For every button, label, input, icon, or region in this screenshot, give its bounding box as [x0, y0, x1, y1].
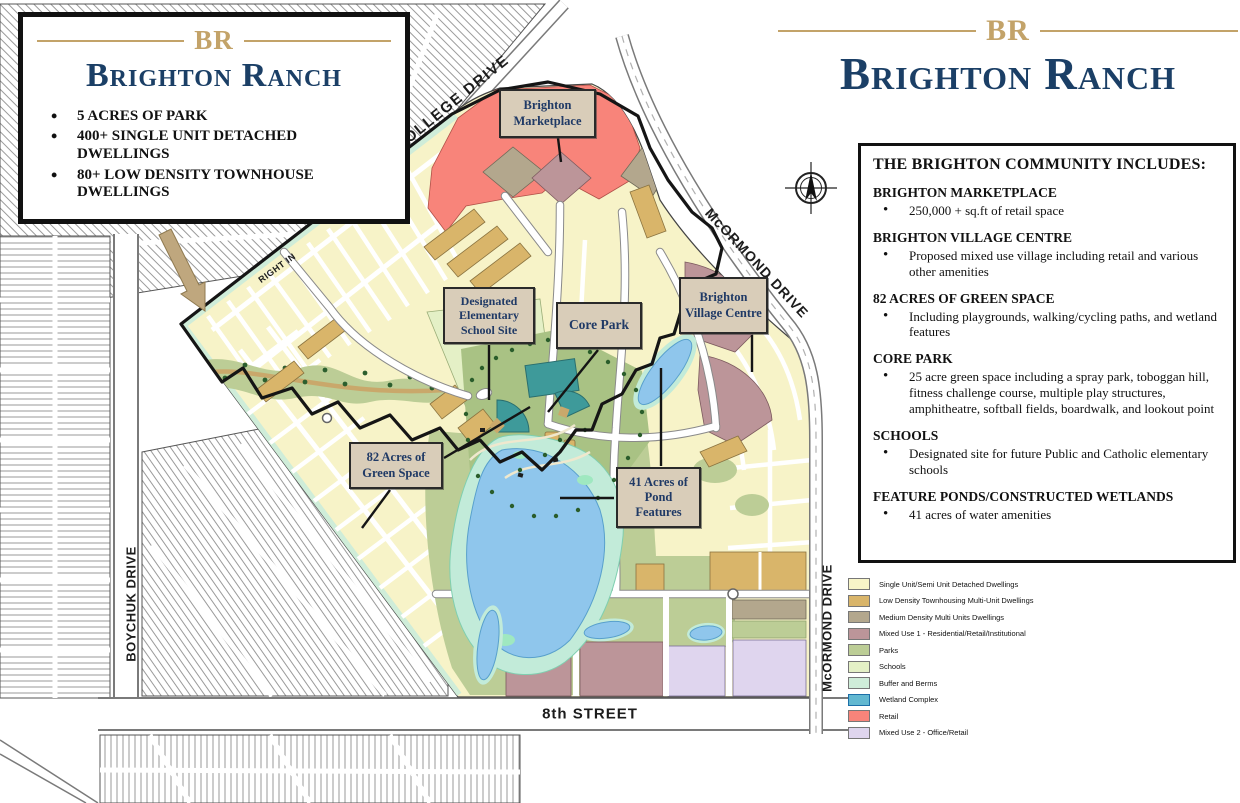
legend-label: Parks: [879, 646, 898, 655]
legend-item: Wetland Complex: [848, 692, 1034, 709]
label-text: Core Park: [569, 317, 629, 333]
legend-item: Low Density Townhousing Multi-Unit Dwell…: [848, 593, 1034, 610]
north-compass-icon: [785, 162, 837, 214]
logo-rule: [244, 40, 391, 42]
legend-swatch: [848, 595, 870, 607]
section-desc: Designated site for future Public and Ca…: [873, 446, 1221, 478]
community-info-box: THE BRIGHTON COMMUNITY INCLUDES: BRIGHTO…: [858, 143, 1236, 563]
legend-label: Mixed Use 2 - Office/Retail: [879, 728, 968, 737]
legend-label: Retail: [879, 712, 898, 721]
community-section: BRIGHTON MARKETPLACE 250,000 + sq.ft of …: [873, 185, 1221, 219]
section-title: BRIGHTON VILLAGE CENTRE: [873, 230, 1221, 246]
section-desc: Proposed mixed use village including ret…: [873, 248, 1221, 280]
logo-rule: [37, 40, 184, 42]
legend-label: Low Density Townhousing Multi-Unit Dwell…: [879, 596, 1034, 605]
title-card-bullets: 5 ACRES OF PARK 400+ SINGLE UNIT DETACHE…: [43, 108, 391, 202]
title-card: BR Brighton Ranch 5 ACRES OF PARK 400+ S…: [18, 12, 410, 224]
legend-label: Mixed Use 1 - Residential/Retail/Institu…: [879, 629, 1026, 638]
legend-label: Wetland Complex: [879, 695, 938, 704]
label-text: Designated Elementary School Site: [448, 294, 530, 338]
legend-swatch: [848, 578, 870, 590]
label-elementary-school-site: Designated Elementary School Site: [443, 287, 535, 344]
street-label-8th-street: 8th STREET: [542, 706, 638, 723]
label-82-acres-green-space: 82 Acres of Green Space: [349, 442, 443, 489]
label-brighton-village-centre: Brighton Village Centre: [679, 277, 768, 334]
label-text: Brighton Village Centre: [684, 290, 763, 321]
legend-label: Buffer and Berms: [879, 679, 937, 688]
label-brighton-marketplace: Brighton Marketplace: [499, 89, 596, 138]
section-desc: 41 acres of water amenities: [873, 507, 1221, 523]
mixed-use2-block: [668, 646, 725, 696]
label-text: 82 Acres of Green Space: [354, 450, 438, 481]
label-core-park: Core Park: [556, 302, 642, 349]
legend-item: Single Unit/Semi Unit Detached Dwellings: [848, 576, 1034, 593]
logo-monogram: BR: [986, 14, 1030, 48]
community-section: CORE PARK 25 acre green space including …: [873, 351, 1221, 417]
brand-logo: BR: [37, 25, 391, 56]
brighton-ranch-map-page: COLLEGE DRIVE McORMOND DRIVE McORMOND DR…: [0, 0, 1240, 803]
section-desc: Including playgrounds, walking/cycling p…: [873, 309, 1221, 341]
legend-label: Schools: [879, 662, 906, 671]
logo-rule: [778, 30, 976, 32]
label-text: 41 Acres of Pond Features: [621, 475, 696, 521]
section-title: SCHOOLS: [873, 428, 1221, 444]
street-label-mcormond-drive-lower: McORMOND DRIVE: [820, 564, 835, 692]
community-section: BRIGHTON VILLAGE CENTRE Proposed mixed u…: [873, 230, 1221, 280]
legend-swatch: [848, 677, 870, 689]
legend-swatch: [848, 644, 870, 656]
section-title: BRIGHTON MARKETPLACE: [873, 185, 1221, 201]
bullet-item: 80+ LOW DENSITY TOWNHOUSE DWELLINGS: [43, 167, 391, 202]
medium-density-block: [732, 600, 806, 619]
label-41-acres-pond-features: 41 Acres of Pond Features: [616, 467, 701, 528]
logo-monogram: BR: [194, 25, 234, 56]
map-legend: Single Unit/Semi Unit Detached Dwellings…: [848, 576, 1034, 741]
legend-swatch: [848, 694, 870, 706]
section-desc: 250,000 + sq.ft of retail space: [873, 203, 1221, 219]
community-section: 82 ACRES OF GREEN SPACE Including playgr…: [873, 291, 1221, 341]
brand-logo: BR: [778, 14, 1238, 48]
legend-label: Medium Density Multi Units Dwellings: [879, 613, 1004, 622]
legend-item: Medium Density Multi Units Dwellings: [848, 609, 1034, 626]
header-brand: BR Brighton Ranch: [778, 14, 1238, 97]
bullet-item: 400+ SINGLE UNIT DETACHED DWELLINGS: [43, 128, 391, 163]
bullet-item: 5 ACRES OF PARK: [43, 108, 391, 126]
label-text: Brighton Marketplace: [504, 98, 591, 129]
legend-item: Mixed Use 2 - Office/Retail: [848, 725, 1034, 742]
logo-rule: [1040, 30, 1238, 32]
section-title: 82 ACRES OF GREEN SPACE: [873, 291, 1221, 307]
legend-swatch: [848, 611, 870, 623]
legend-item: Retail: [848, 708, 1034, 725]
section-title: FEATURE PONDS/CONSTRUCTED WETLANDS: [873, 489, 1221, 505]
mixed-use2-block: [733, 640, 806, 696]
header-title: Brighton Ranch: [778, 52, 1238, 97]
street-label-boychuk-drive: BOYCHUK DRIVE: [124, 546, 139, 662]
legend-label: Single Unit/Semi Unit Detached Dwellings: [879, 580, 1018, 589]
section-title: CORE PARK: [873, 351, 1221, 367]
section-desc: 25 acre green space including a spray pa…: [873, 369, 1221, 417]
page-title: Brighton Ranch: [37, 58, 391, 94]
community-section: FEATURE PONDS/CONSTRUCTED WETLANDS 41 ac…: [873, 489, 1221, 523]
mixed-use1-block: [580, 642, 663, 696]
legend-item: Buffer and Berms: [848, 675, 1034, 692]
legend-item: Schools: [848, 659, 1034, 676]
community-section: SCHOOLS Designated site for future Publi…: [873, 428, 1221, 478]
legend-swatch: [848, 727, 870, 739]
legend-swatch: [848, 628, 870, 640]
legend-item: Mixed Use 1 - Residential/Retail/Institu…: [848, 626, 1034, 643]
legend-item: Parks: [848, 642, 1034, 659]
community-box-heading: THE BRIGHTON COMMUNITY INCLUDES:: [873, 156, 1221, 174]
legend-swatch: [848, 661, 870, 673]
legend-swatch: [848, 710, 870, 722]
